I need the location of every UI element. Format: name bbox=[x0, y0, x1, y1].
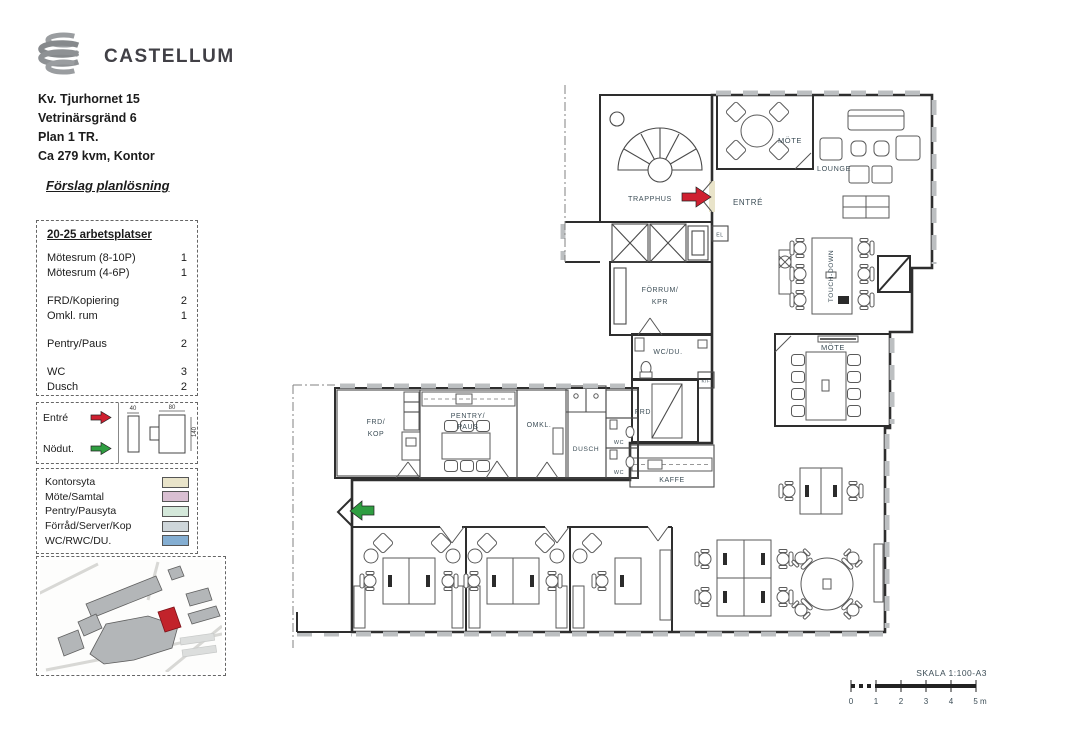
scale-tick: 1 bbox=[874, 697, 879, 706]
svg-text:K/F: K/F bbox=[702, 379, 711, 384]
site-map-box bbox=[36, 556, 226, 676]
scale-tick: 2 bbox=[899, 697, 904, 706]
proposal-title: Förslag planlösning bbox=[46, 178, 170, 193]
legend-row: Pentry/Pausyta bbox=[45, 504, 189, 519]
svg-text:DUSCH: DUSCH bbox=[573, 446, 599, 453]
open-office-quad bbox=[695, 540, 793, 616]
nodut-arrow bbox=[350, 501, 374, 520]
address-line: Vetrinärsgränd 6 bbox=[38, 109, 155, 128]
logo-text: CASTELLUM bbox=[104, 46, 235, 68]
svg-text:LOUNGE: LOUNGE bbox=[817, 164, 851, 173]
svg-text:PAUS: PAUS bbox=[458, 424, 479, 431]
entre-zone: TRAPPHUS ENTRÉ bbox=[628, 181, 763, 212]
room-kaffe: KAFFE bbox=[630, 445, 714, 487]
svg-text:ENTRÉ: ENTRÉ bbox=[733, 198, 763, 207]
elevator-shafts bbox=[612, 224, 708, 262]
castellum-logo-icon bbox=[36, 30, 94, 84]
svg-text:TOUCH-DOWN: TOUCH-DOWN bbox=[828, 250, 835, 302]
svg-text:KAFFE: KAFFE bbox=[659, 477, 685, 484]
svg-text:EL: EL bbox=[716, 233, 724, 239]
legend-row: Kontorsyta bbox=[45, 475, 189, 490]
svg-text:WC: WC bbox=[614, 440, 624, 446]
touchdown-zone: TOUCH-DOWN bbox=[779, 238, 874, 314]
address-line: Kv. Tjurhornet 15 bbox=[38, 90, 155, 109]
legend-row: Förråd/Server/Kop bbox=[45, 519, 189, 534]
legend-swatch-forrad bbox=[162, 521, 189, 532]
program-row: Mötesrum (8-10P)1 bbox=[47, 251, 187, 266]
svg-text:KOP: KOP bbox=[368, 431, 385, 438]
address-block: Kv. Tjurhornet 15 Vetrinärsgränd 6 Plan … bbox=[38, 90, 155, 166]
symbols-box: Entré Nödut. 40 80 140 bbox=[36, 402, 198, 464]
program-row: Dusch2 bbox=[47, 380, 187, 395]
svg-text:TRAPPHUS: TRAPPHUS bbox=[628, 194, 672, 203]
nodut-symbol-label: Nödut. bbox=[43, 443, 74, 455]
legend-swatch-mote bbox=[162, 491, 189, 502]
entre-symbol-label: Entré bbox=[43, 412, 68, 424]
room-forrum-label: FÖRRUM/ KPR bbox=[638, 286, 678, 335]
workstation-dimension-diagram: 40 80 140 bbox=[119, 403, 197, 463]
room-frd: FRD bbox=[632, 380, 698, 442]
site-map bbox=[40, 560, 222, 672]
address-line: Ca 279 kvm, Kontor bbox=[38, 147, 155, 166]
left-wing: FRD/ KOP PENTRY/ PAUS OMKL. DUSCH bbox=[335, 386, 638, 478]
program-box: 20-25 arbetsplatser Mötesrum (8-10P)1 Mö… bbox=[36, 220, 198, 396]
legend-row: WC/RWC/DU. bbox=[45, 533, 189, 548]
color-legend: Kontorsyta Möte/Samtal Pentry/Pausyta Fö… bbox=[36, 468, 198, 554]
svg-text:WC/DU.: WC/DU. bbox=[653, 349, 682, 356]
svg-text:MÖTE: MÖTE bbox=[821, 343, 845, 352]
program-row: Omkl. rum1 bbox=[47, 309, 187, 324]
svg-text:OMKL.: OMKL. bbox=[527, 422, 552, 429]
scale-bar: SKALA 1:100-A3 0 1 2 3 4 5 m bbox=[845, 666, 995, 712]
address-line: Plan 1 TR. bbox=[38, 128, 155, 147]
legend-swatch-kontorsyta bbox=[162, 477, 189, 488]
emergency-exit bbox=[338, 498, 374, 526]
program-title: 20-25 arbetsplatser bbox=[47, 229, 187, 241]
room-wc-2: WC bbox=[606, 448, 638, 478]
forrum-cabinet bbox=[614, 268, 626, 324]
svg-text:FÖRRUM/: FÖRRUM/ bbox=[642, 286, 679, 294]
scale-title: SKALA 1:100-A3 bbox=[916, 668, 987, 678]
open-office-round-table bbox=[790, 547, 864, 621]
shaft-right bbox=[878, 256, 910, 292]
legend-swatch-pentry bbox=[162, 506, 189, 517]
floor-plan: EL MÖTE MÖT bbox=[280, 80, 960, 680]
program-row: FRD/Kopiering2 bbox=[47, 294, 187, 309]
scale-tick: 3 bbox=[924, 697, 929, 706]
scale-tick: 5 m bbox=[973, 697, 987, 706]
scale-tick: 0 bbox=[849, 697, 854, 706]
open-office-pair bbox=[779, 468, 863, 514]
legend-row: Möte/Samtal bbox=[45, 490, 189, 505]
lounge-zone: LOUNGE bbox=[817, 110, 920, 218]
svg-text:PENTRY/: PENTRY/ bbox=[451, 413, 485, 420]
svg-text:FRD/: FRD/ bbox=[367, 419, 386, 426]
svg-text:WC: WC bbox=[614, 470, 624, 476]
program-row: WC3 bbox=[47, 365, 187, 380]
office-room-1 bbox=[360, 532, 460, 604]
program-row: Pentry/Paus2 bbox=[47, 337, 187, 352]
brand-header: CASTELLUM bbox=[36, 30, 235, 84]
dim-80: 80 bbox=[169, 405, 176, 411]
room-mote-small: MÖTE bbox=[717, 95, 813, 169]
legend-swatch-wc bbox=[162, 535, 189, 546]
scale-tick: 4 bbox=[949, 697, 954, 706]
nodut-arrow-icon bbox=[90, 442, 112, 455]
entre-arrow bbox=[682, 187, 711, 207]
svg-text:MÖTE: MÖTE bbox=[778, 136, 802, 145]
bath-vestibule bbox=[606, 390, 638, 418]
office-zone bbox=[352, 468, 883, 632]
svg-text:KPR: KPR bbox=[652, 299, 668, 306]
room-mote-large: MÖTE bbox=[775, 334, 890, 426]
el-closet: EL bbox=[712, 226, 728, 241]
program-row: Mötesrum (4-6P)1 bbox=[47, 266, 187, 281]
dim-40: 40 bbox=[130, 406, 137, 412]
entre-arrow-icon bbox=[90, 411, 112, 424]
dim-140: 140 bbox=[192, 426, 197, 437]
